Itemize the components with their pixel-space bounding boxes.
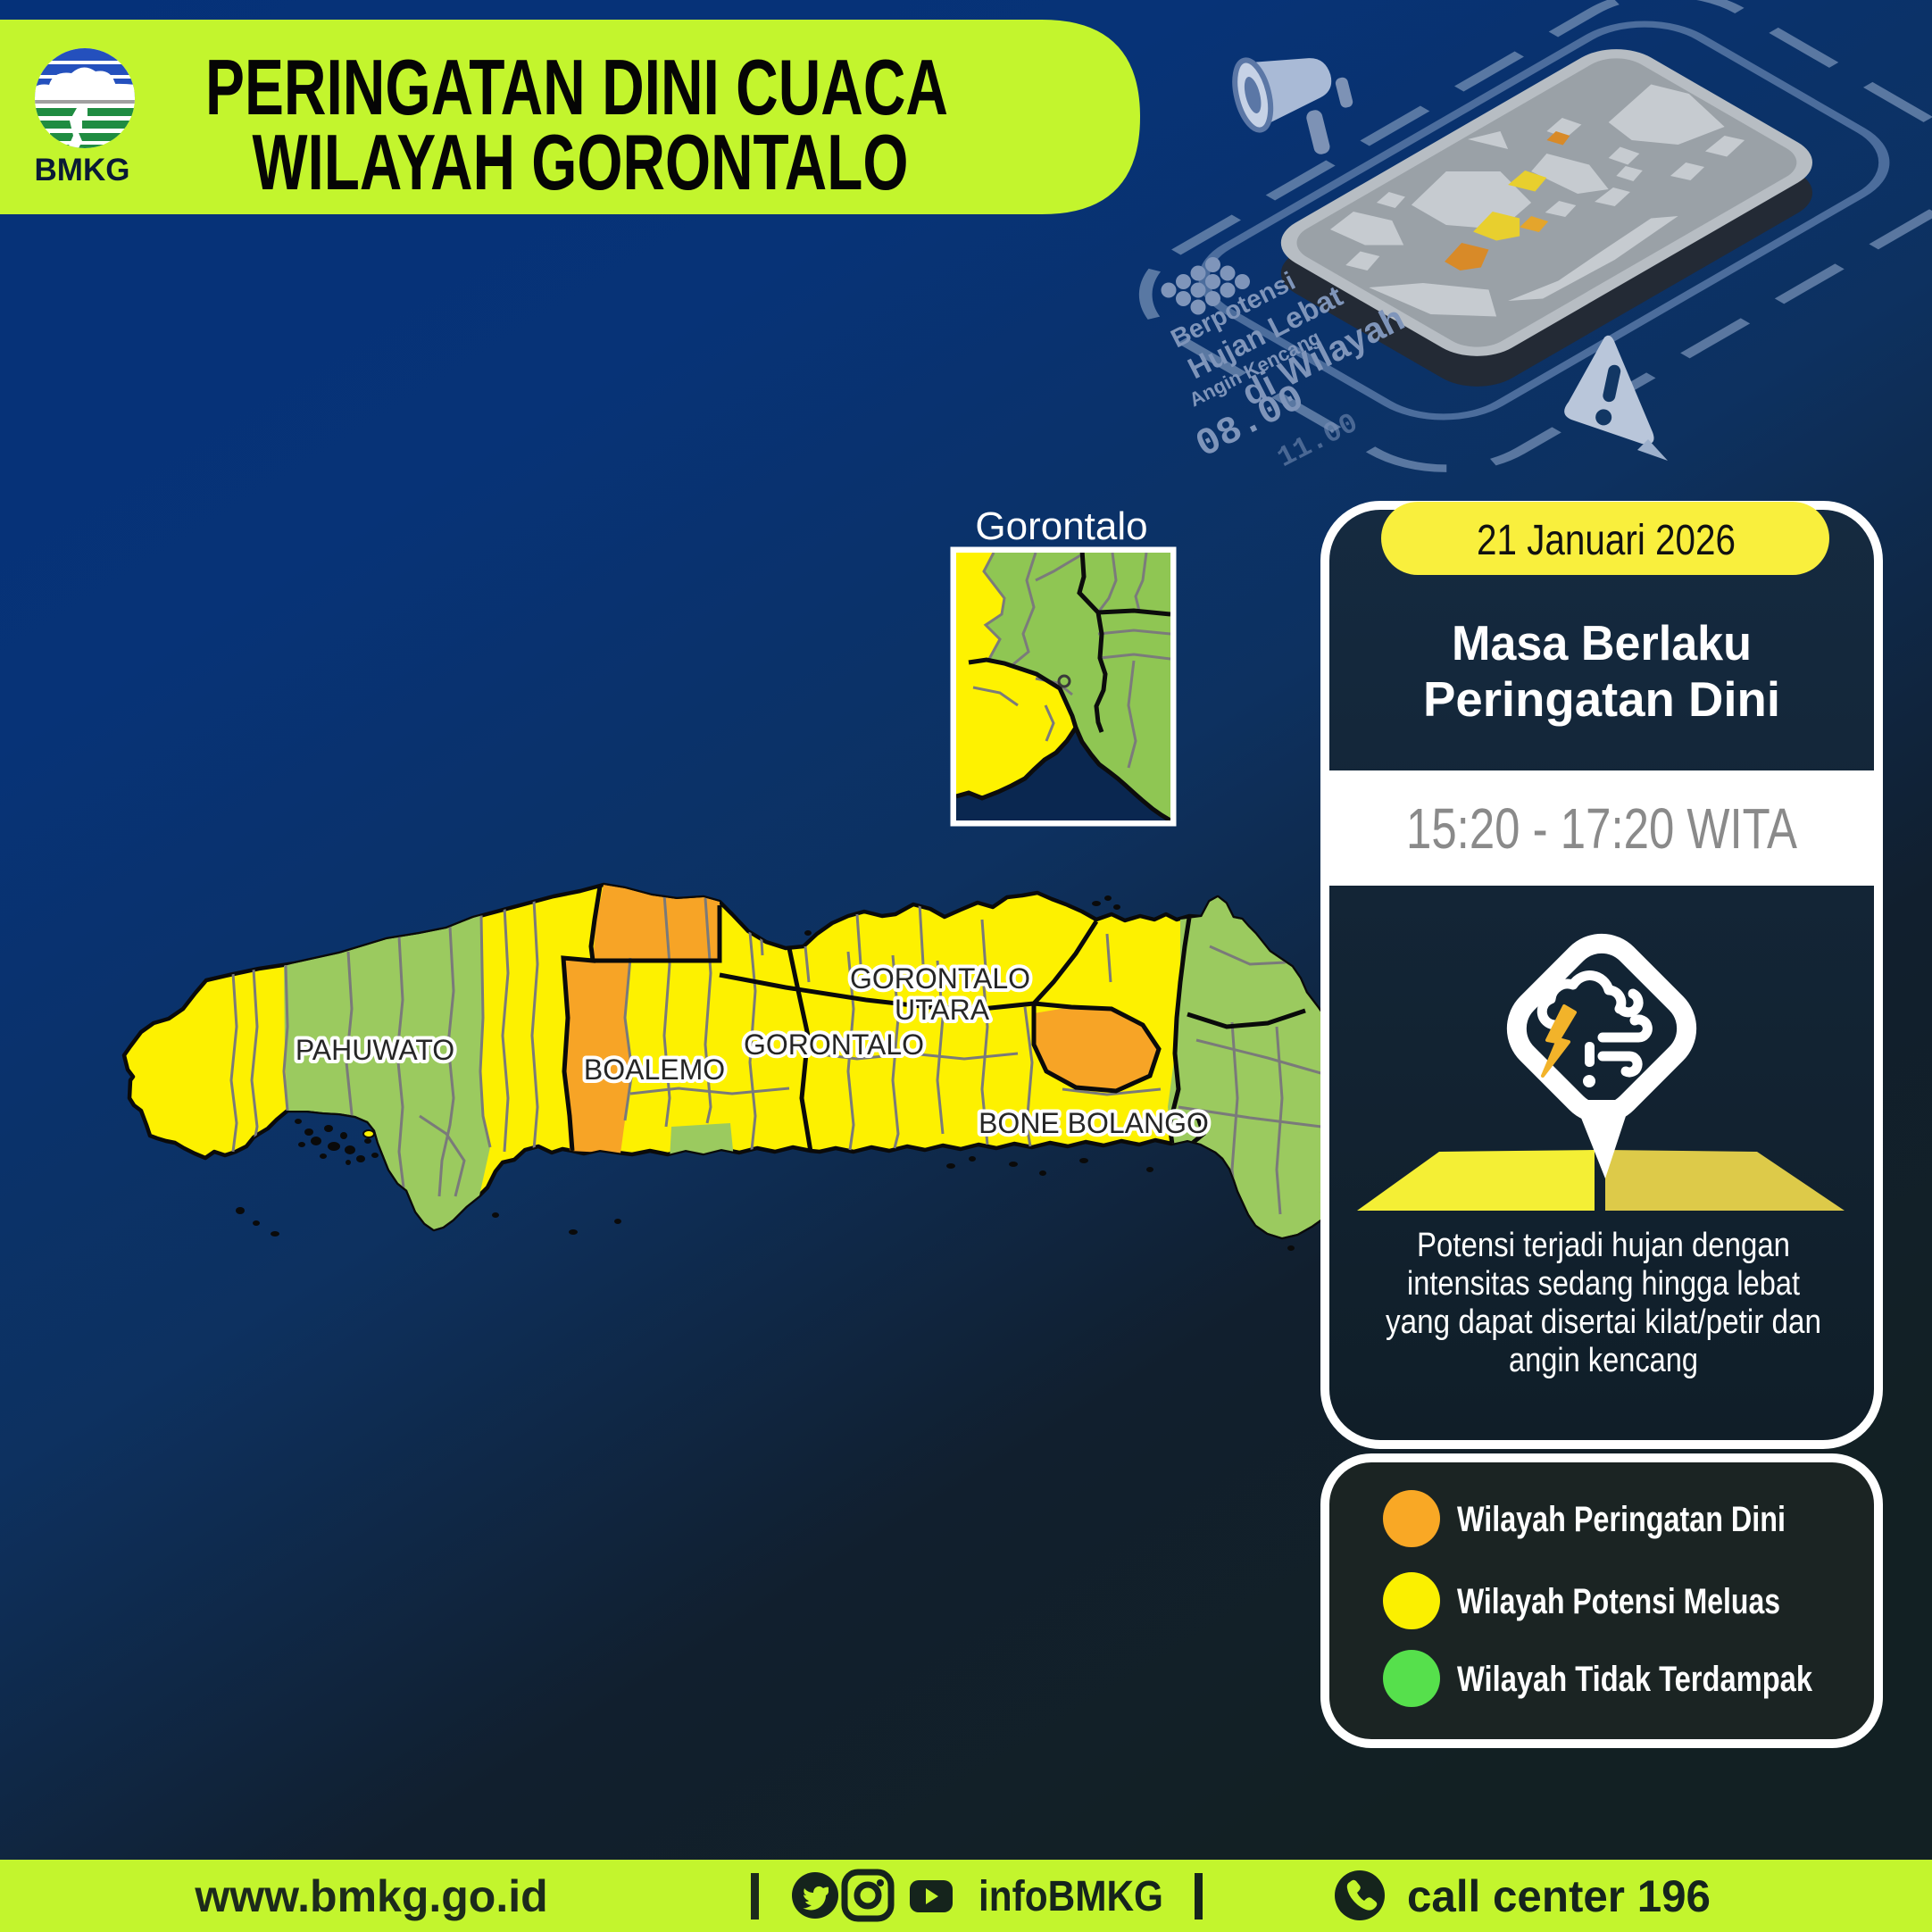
svg-text:Gorontalo: Gorontalo	[975, 504, 1147, 548]
svg-text:UTARA: UTARA	[895, 994, 990, 1026]
svg-text:angin kencang: angin kencang	[1509, 1342, 1698, 1379]
svg-text:Wilayah Potensi Meluas: Wilayah Potensi Meluas	[1457, 1582, 1780, 1621]
svg-text:yang dapat disertai kilat/peti: yang dapat disertai kilat/petir dan	[1386, 1303, 1821, 1341]
svg-text:WILAYAH GORONTALO: WILAYAH GORONTALO	[253, 118, 909, 206]
svg-text:infoBMKG: infoBMKG	[978, 1873, 1163, 1920]
svg-text:GORONTALO: GORONTALO	[744, 1028, 924, 1061]
svg-text:15:20 - 17:20 WITA: 15:20 - 17:20 WITA	[1406, 796, 1797, 861]
svg-text:GORONTALO: GORONTALO	[850, 962, 1030, 995]
svg-text:call center 196: call center 196	[1407, 1871, 1711, 1921]
svg-text:BOALEMO: BOALEMO	[584, 1053, 725, 1086]
svg-text:PAHUWATO: PAHUWATO	[296, 1034, 454, 1066]
svg-text:Masa Berlaku: Masa Berlaku	[1452, 615, 1752, 670]
svg-text:BONE BOLANGO: BONE BOLANGO	[978, 1107, 1209, 1139]
svg-text:Wilayah Peringatan Dini: Wilayah Peringatan Dini	[1457, 1500, 1786, 1539]
svg-text:Potensi terjadi hujan dengan: Potensi terjadi hujan dengan	[1417, 1227, 1790, 1264]
svg-text:BMKG: BMKG	[35, 153, 130, 187]
svg-text:Wilayah Tidak Terdampak: Wilayah Tidak Terdampak	[1457, 1660, 1813, 1699]
svg-text:www.bmkg.go.id: www.bmkg.go.id	[194, 1871, 547, 1921]
svg-text:intensitas sedang hingga lebat: intensitas sedang hingga lebat	[1407, 1265, 1800, 1303]
svg-text:Peringatan Dini: Peringatan Dini	[1423, 671, 1780, 727]
svg-text:21 Januari 2026: 21 Januari 2026	[1477, 517, 1736, 564]
